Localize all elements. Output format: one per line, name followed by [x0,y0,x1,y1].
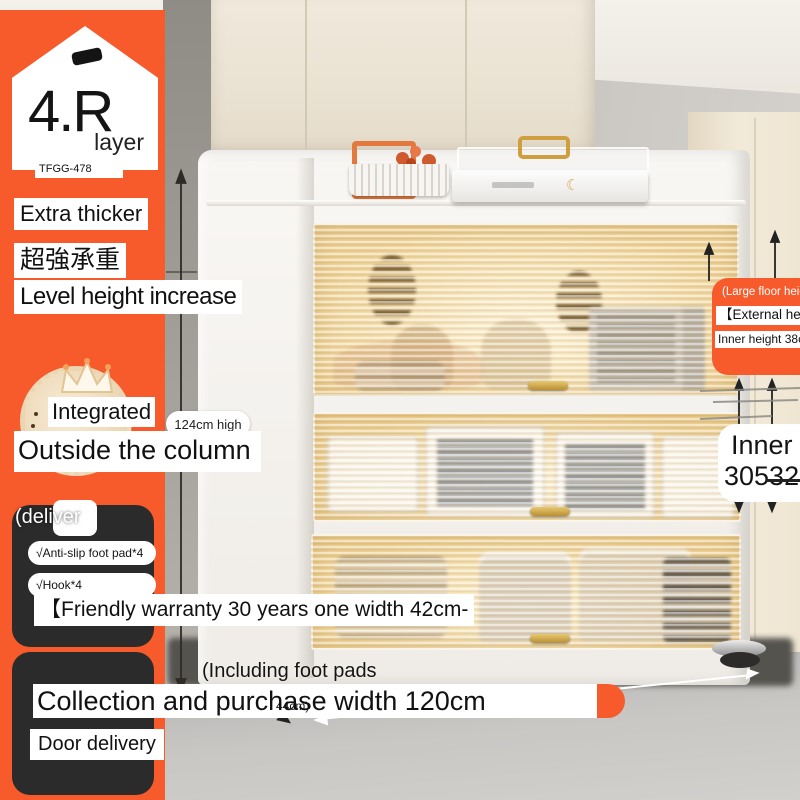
outside-column-label: Outside the column [14,431,261,472]
kettle-silhouette [391,325,453,389]
model-number: TFGG-478 [35,162,123,178]
door-handle-top [528,381,568,390]
feature-extra-thicker: Extra thicker [14,198,148,230]
depth-note: 44cm) [276,699,309,713]
bread-box [452,170,648,202]
storage-bin-silhouette [425,426,545,516]
storage-bin-silhouette [555,432,655,518]
chimney-mark [71,47,103,66]
inner-height-cut-line2: 30532 [724,461,799,492]
bread-box-handle [518,136,570,159]
product-image: ☾ [0,0,800,800]
inner-height-label: Inner height 38cm [715,331,800,348]
inner-height-cut-line1: Inner h [731,430,800,461]
layer-label: layer [94,129,144,156]
storage-basket [349,164,449,196]
brand-smudge [492,182,534,188]
cabinet-seam [305,0,307,168]
adjustable-foot-base [720,652,760,668]
door-delivery-label: Door delivery [30,729,164,760]
door-handle-middle [530,507,570,516]
grille-silhouette [663,558,731,642]
including-foot-pads-note: (Including foot pads [202,660,377,683]
deliver-title: (deliver [15,506,81,529]
dishes-silhouette [333,341,483,389]
door-handle-bottom [530,634,570,643]
included-item-foot-pads: √Anti-slip foot pad*4 [28,541,156,565]
appliance-silhouette [556,271,602,333]
feature-strong-load: 超強承重 [14,243,126,278]
cabinet-door-middle [313,412,741,522]
feature-level-height: Level height increase [14,280,242,314]
jar-silhouette [481,319,551,389]
crown-icon [58,358,116,398]
cabinet-door-top [313,223,739,396]
cabinet-door-bottom [311,534,741,650]
delivery-box [12,652,154,795]
inner-dash-mark [766,479,800,482]
external-height-label: 【External height 4 [716,306,800,325]
microwave-silhouette [589,307,705,391]
pantry-door-seam [754,118,756,658]
star-dots [34,412,38,416]
collection-label: Collection and purchase width 120cm [33,684,597,718]
pot-silhouette [579,548,691,642]
large-floor-label: (Large floor heigh [722,286,800,298]
cabinet-seam [465,0,467,168]
warranty-label: 【Friendly warranty 30 years one width 42… [34,594,474,626]
integrated-label: Integrated [48,397,155,427]
appliance-silhouette [368,255,416,325]
steamer-silhouette [479,552,571,642]
container-silhouette [355,361,445,391]
storage-bin-silhouette [327,436,419,512]
moon-icon: ☾ [566,176,579,194]
